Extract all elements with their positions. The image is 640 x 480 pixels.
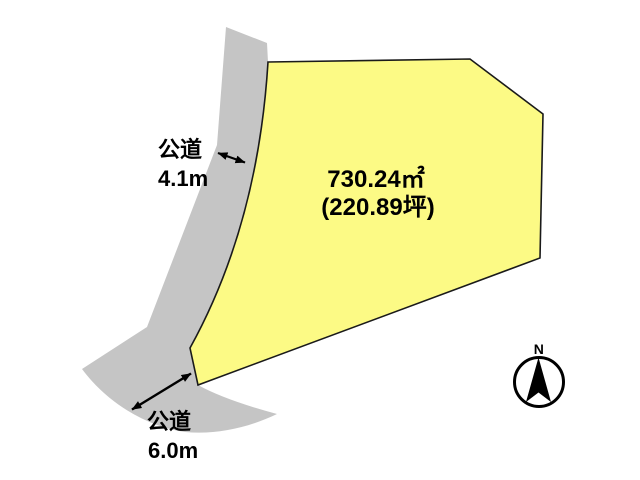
compass: N xyxy=(515,341,564,407)
road-label-upper-width: 4.1m xyxy=(158,166,208,191)
north-arrow-icon xyxy=(526,358,551,403)
compass-north-label: N xyxy=(534,341,545,357)
plot-diagram-svg: 公道 4.1m 公道 6.0m 730.24㎡ (220.89坪) N xyxy=(0,0,640,480)
plot-area-tsubo: (220.89坪) xyxy=(321,194,434,221)
road-label-lower-width: 6.0m xyxy=(148,438,198,463)
land-plot-diagram: 公道 4.1m 公道 6.0m 730.24㎡ (220.89坪) N xyxy=(0,0,640,480)
plot-area-square-meters: 730.24㎡ xyxy=(327,165,424,193)
road-label-upper-name: 公道 xyxy=(158,137,202,162)
road-label-lower-name: 公道 xyxy=(147,409,191,434)
